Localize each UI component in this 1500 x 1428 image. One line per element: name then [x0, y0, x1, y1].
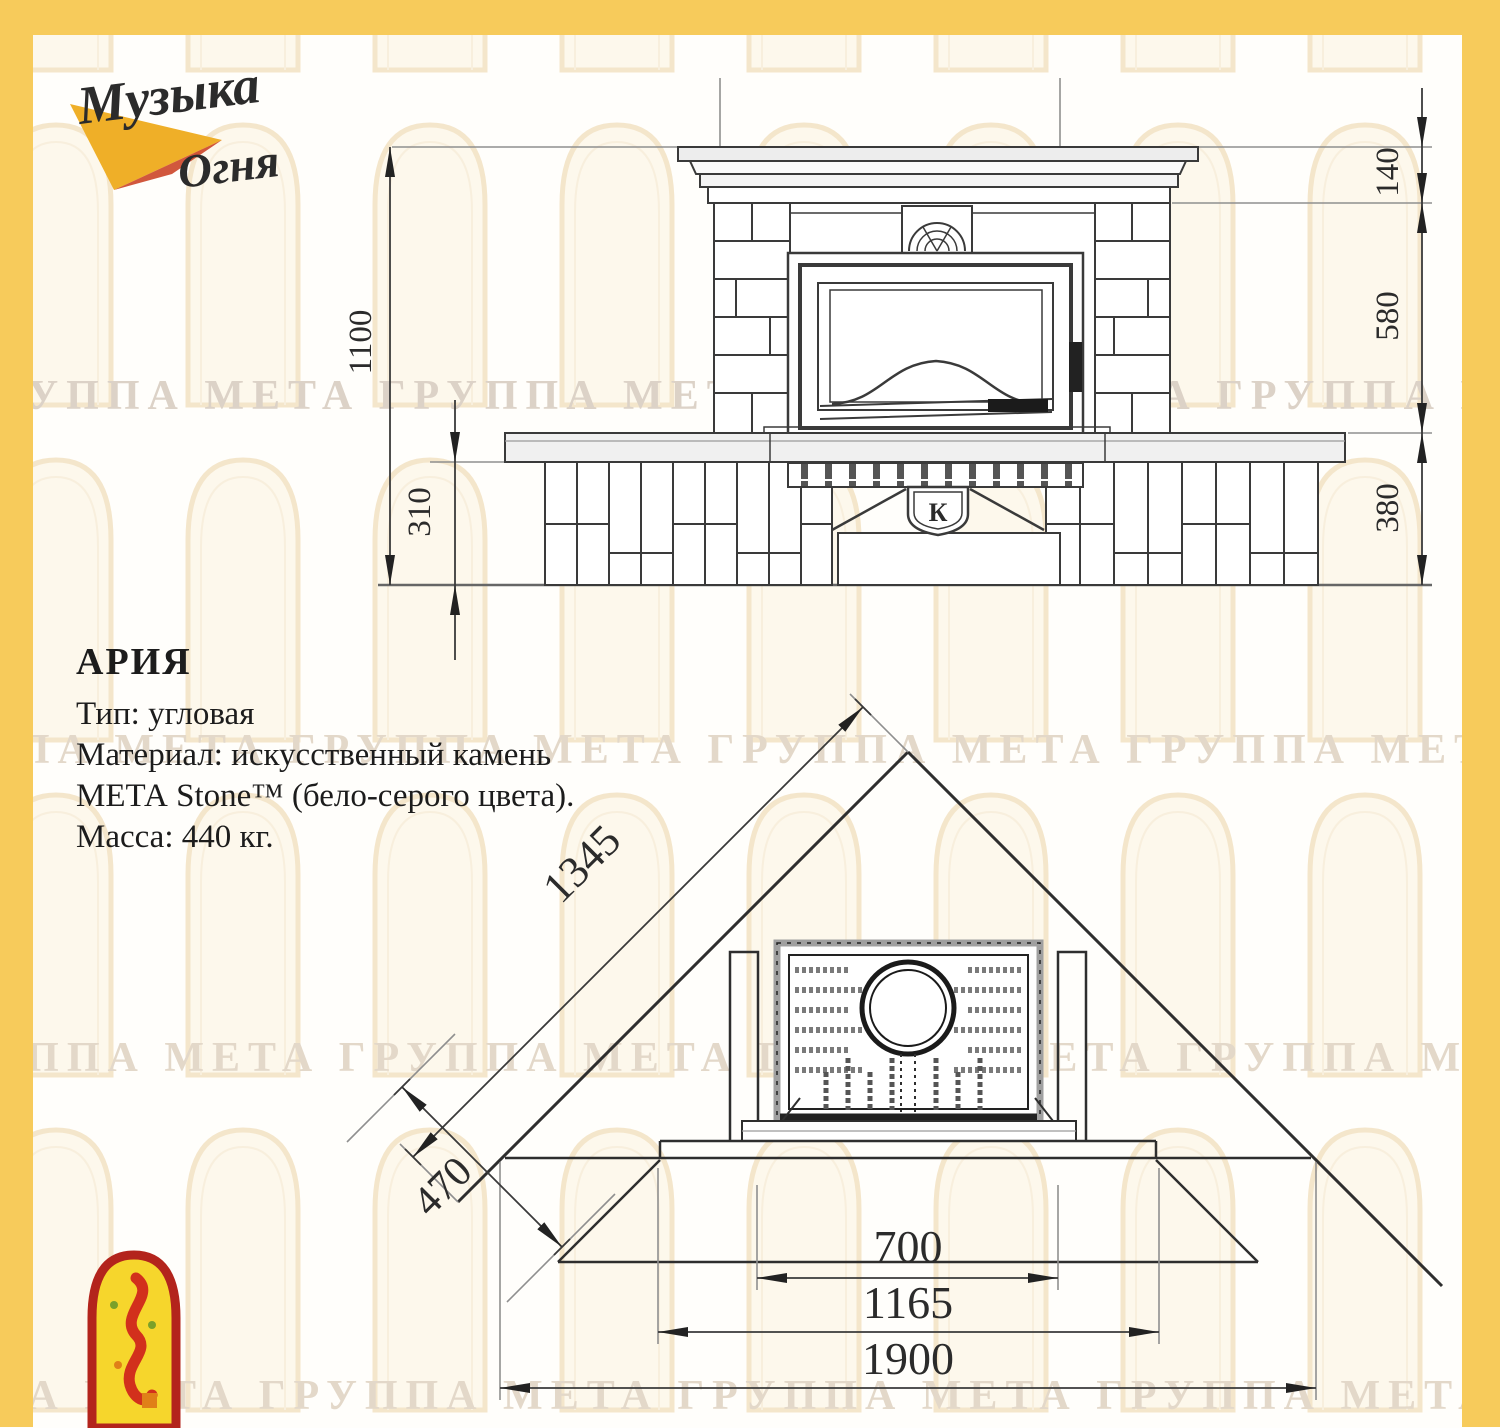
spec-mass: Масса: 440 кг.: [76, 817, 574, 858]
left-return: [730, 952, 758, 1141]
keystone-shield: К: [908, 487, 968, 535]
brand-logo: Музыка Огня: [52, 42, 362, 207]
dim-base-band: 380: [1370, 483, 1406, 533]
mantel-shelf: [678, 147, 1198, 203]
front-elevation-drawing: К: [378, 78, 1432, 585]
dim-overall-width: 1900: [862, 1333, 954, 1384]
logo-word-1: Музыка: [73, 54, 263, 136]
page-frame-right: [1462, 0, 1500, 1427]
ash-lip: [988, 399, 1048, 412]
dim-total-height: 1100: [343, 310, 379, 375]
dim-middle-band: 580: [1370, 291, 1406, 341]
spec-material-1: Материал: искусственный камень: [76, 735, 574, 776]
page: { "page": { "frame_color": "#F7CB5B" }, …: [0, 0, 1500, 1427]
arch-emblem: [84, 1243, 184, 1428]
dim-hearth-height: 310: [402, 487, 438, 537]
page-frame-left: [0, 0, 33, 1427]
door-handle: [1069, 342, 1082, 392]
firebox-door: [788, 253, 1083, 440]
keystone-letter: К: [929, 498, 948, 527]
spec-type: Тип: угловая: [76, 694, 574, 735]
dim-front-face: 1165: [863, 1277, 953, 1328]
page-frame-top: [0, 0, 1500, 35]
logo-word-2: Огня: [175, 135, 282, 199]
hearth-slab: [505, 427, 1345, 462]
spec-material-2: МЕТА Stone™ (бело-серого цвета).: [76, 776, 574, 817]
product-specs: АРИЯ Тип: угловая Материал: искусственны…: [76, 640, 574, 858]
product-title: АРИЯ: [76, 640, 574, 684]
base-right-planks: [1046, 462, 1318, 585]
dim-firebox-opening: 700: [874, 1221, 943, 1272]
firebox-plan: [777, 943, 1053, 1121]
dim-mantel-band: 140: [1370, 147, 1406, 197]
insert-slab: [742, 1121, 1076, 1141]
right-return: [1058, 952, 1086, 1141]
